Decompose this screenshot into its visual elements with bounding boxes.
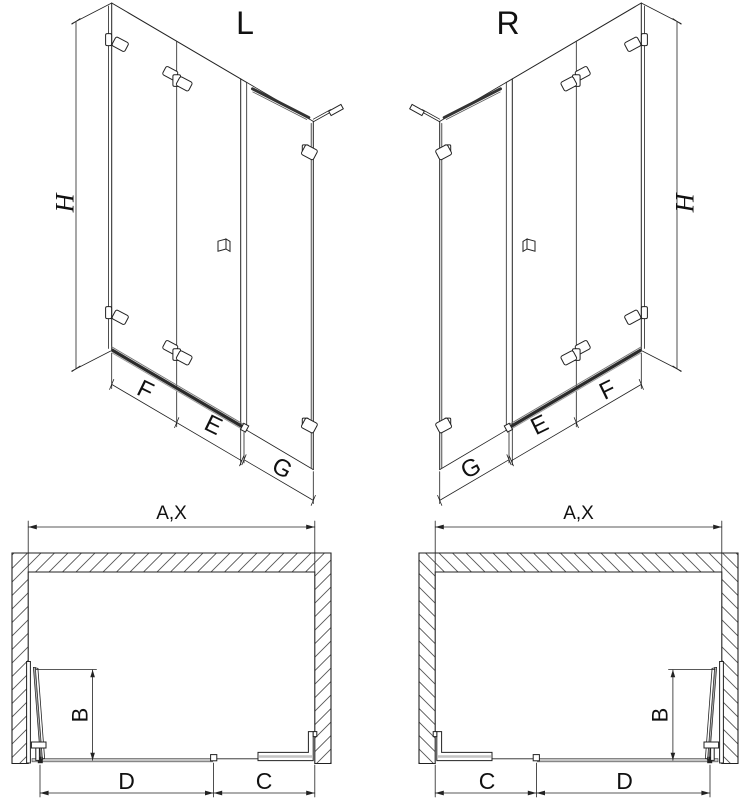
side-panel [247,82,314,469]
dim-label-f-left: F [133,375,158,406]
dim-label-b-right: B [648,708,673,723]
dim-label-c-left: C [256,768,273,794]
folding-door-panels [109,3,247,430]
side-panel-wall-clamp-bottom [301,417,318,433]
wall-mount-plate [329,104,344,115]
hinge-top-fold [162,66,193,92]
shower-enclosure-diagram: L R H H F E G F E G A,X A,X B B D C C D [0,0,752,800]
rail-junction [211,755,217,761]
floor-rail [32,759,213,762]
view-title-right: R [496,5,519,41]
dim-label-ax-left: A,X [156,503,187,524]
dim-label-c-right: C [479,768,496,794]
plan-view-right-art [419,521,738,797]
dim-label-d-right: D [616,768,633,794]
hinge-top-wall [106,34,129,52]
hinge-bottom-wall [106,307,129,325]
dim-label-h-right: H [671,192,700,213]
dim-label-ax-right: A,X [563,503,594,524]
folded-door-stack [27,662,46,764]
dim-label-e-right: E [527,410,553,441]
dim-label-b-left: B [68,708,93,723]
side-panel-wall-clamp-top [301,144,318,160]
door-knob [218,239,230,251]
plan-view-left-art [12,521,331,797]
dim-label-f-right: F [595,375,620,406]
dim-label-h-left: H [51,192,80,213]
view-title-left: L [236,5,254,41]
hinge-bottom-fold [162,340,193,366]
technical-drawing-page: L R H H F E G F E G A,X A,X B B D C C D [0,0,752,800]
corner-bracket [258,732,317,761]
dim-label-e-left: E [200,410,226,441]
dimension-door-span [40,763,315,797]
dim-label-d-left: D [118,768,135,794]
hatched-walls [12,553,331,764]
